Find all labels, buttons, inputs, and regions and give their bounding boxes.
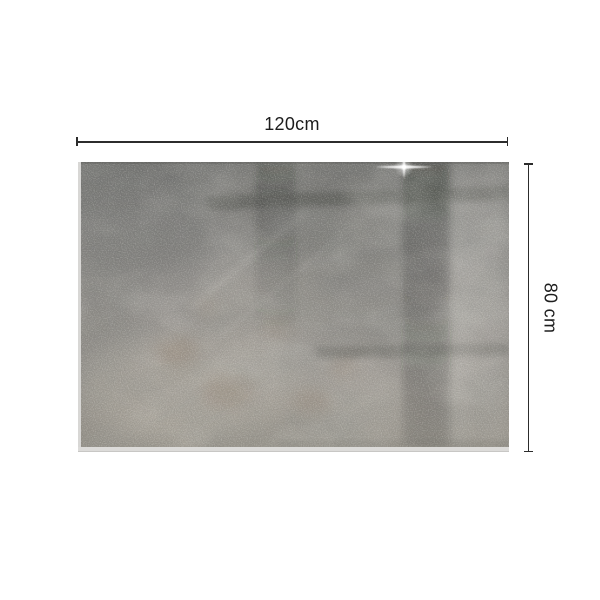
width-dimension-label: 120cm bbox=[76, 114, 508, 134]
product-dimension-diagram: 120cm 80 cm bbox=[0, 0, 600, 600]
concrete-texture bbox=[48, 152, 509, 462]
height-dimension-line bbox=[528, 163, 530, 452]
height-dimension-label-box: 80 cm bbox=[530, 163, 570, 452]
glass-panel-photo bbox=[78, 162, 509, 452]
width-dimension-line bbox=[76, 141, 508, 143]
bottom-rim-shadow bbox=[278, 441, 509, 447]
width-dimension-cap-left bbox=[76, 137, 78, 146]
concrete-grain bbox=[81, 162, 509, 447]
width-dimension-cap-right bbox=[507, 137, 509, 146]
height-dimension-label: 80 cm bbox=[540, 282, 560, 333]
top-rim-shadow bbox=[81, 162, 509, 164]
